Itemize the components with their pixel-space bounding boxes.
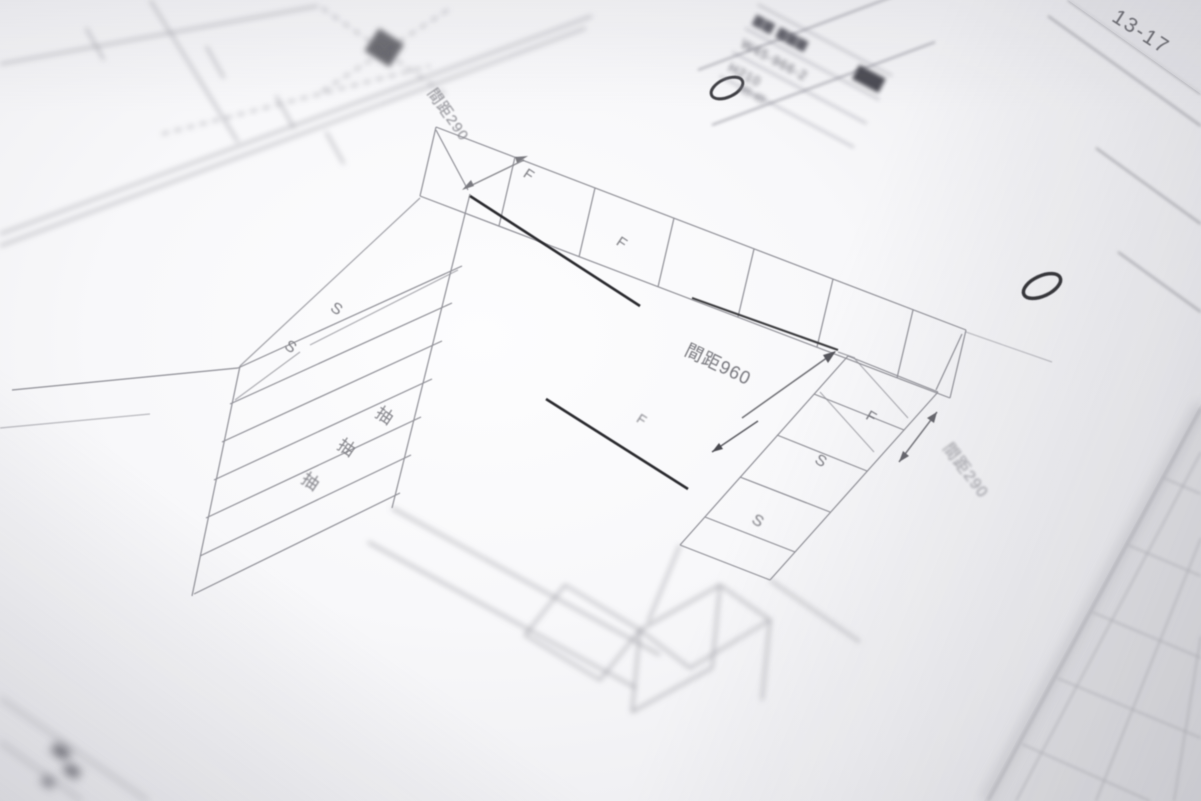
main-cabinet-drawing [0,127,1052,596]
dark-counter-edges [470,196,838,489]
sheet-edge-shadow [984,0,1201,801]
photo-of-cabinet-drawing: 13-17 ▆▆ ▆▆▆ W45-966-2 H210 45-45 間距290 … [0,0,1201,801]
circle-mark-right [1020,268,1065,303]
blurred-bottomleft-corner [0,698,148,801]
blurred-bottom-cabinets [368,508,860,712]
drawing-linework [0,0,1201,801]
